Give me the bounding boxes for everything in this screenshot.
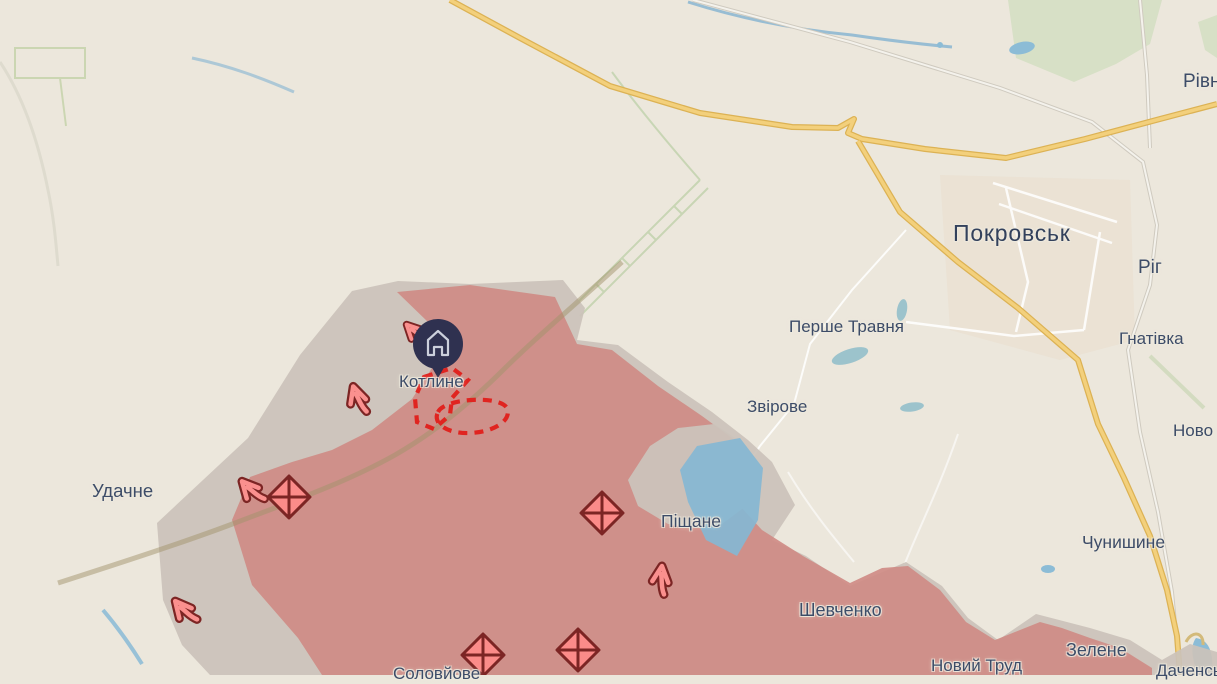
place-label-pokrovsk: Покровськ — [953, 220, 1071, 247]
place-label-kotlyne: Котлине — [399, 372, 464, 392]
place-label-zelene: Зелене — [1066, 640, 1127, 661]
place-label-pershe-travnia: Перше Травня — [789, 317, 904, 337]
place-label-rih: Ріг — [1138, 257, 1162, 279]
place-label-udachne: Удачне — [92, 480, 153, 502]
place-label-chunyshyne: Чунишине — [1082, 532, 1165, 553]
map-canvas[interactable]: Рівне Покровськ Ріг Гнатівка Перше Травн… — [0, 0, 1217, 675]
place-label-zvirove: Звірове — [747, 397, 807, 417]
place-label-rivne: Рівне — [1183, 71, 1217, 93]
place-label-dachenske: Даченське — [1156, 661, 1217, 681]
place-label-shevchenko: Шевченко — [799, 600, 882, 621]
place-label-pishchane: Піщане — [661, 511, 721, 532]
place-label-soloviove: Соловйове — [393, 664, 480, 684]
place-label-novo: Ново — [1173, 421, 1213, 441]
place-label-hnativka: Гнатівка — [1119, 329, 1184, 349]
place-label-novyi-trud: Новий Труд — [931, 656, 1022, 676]
